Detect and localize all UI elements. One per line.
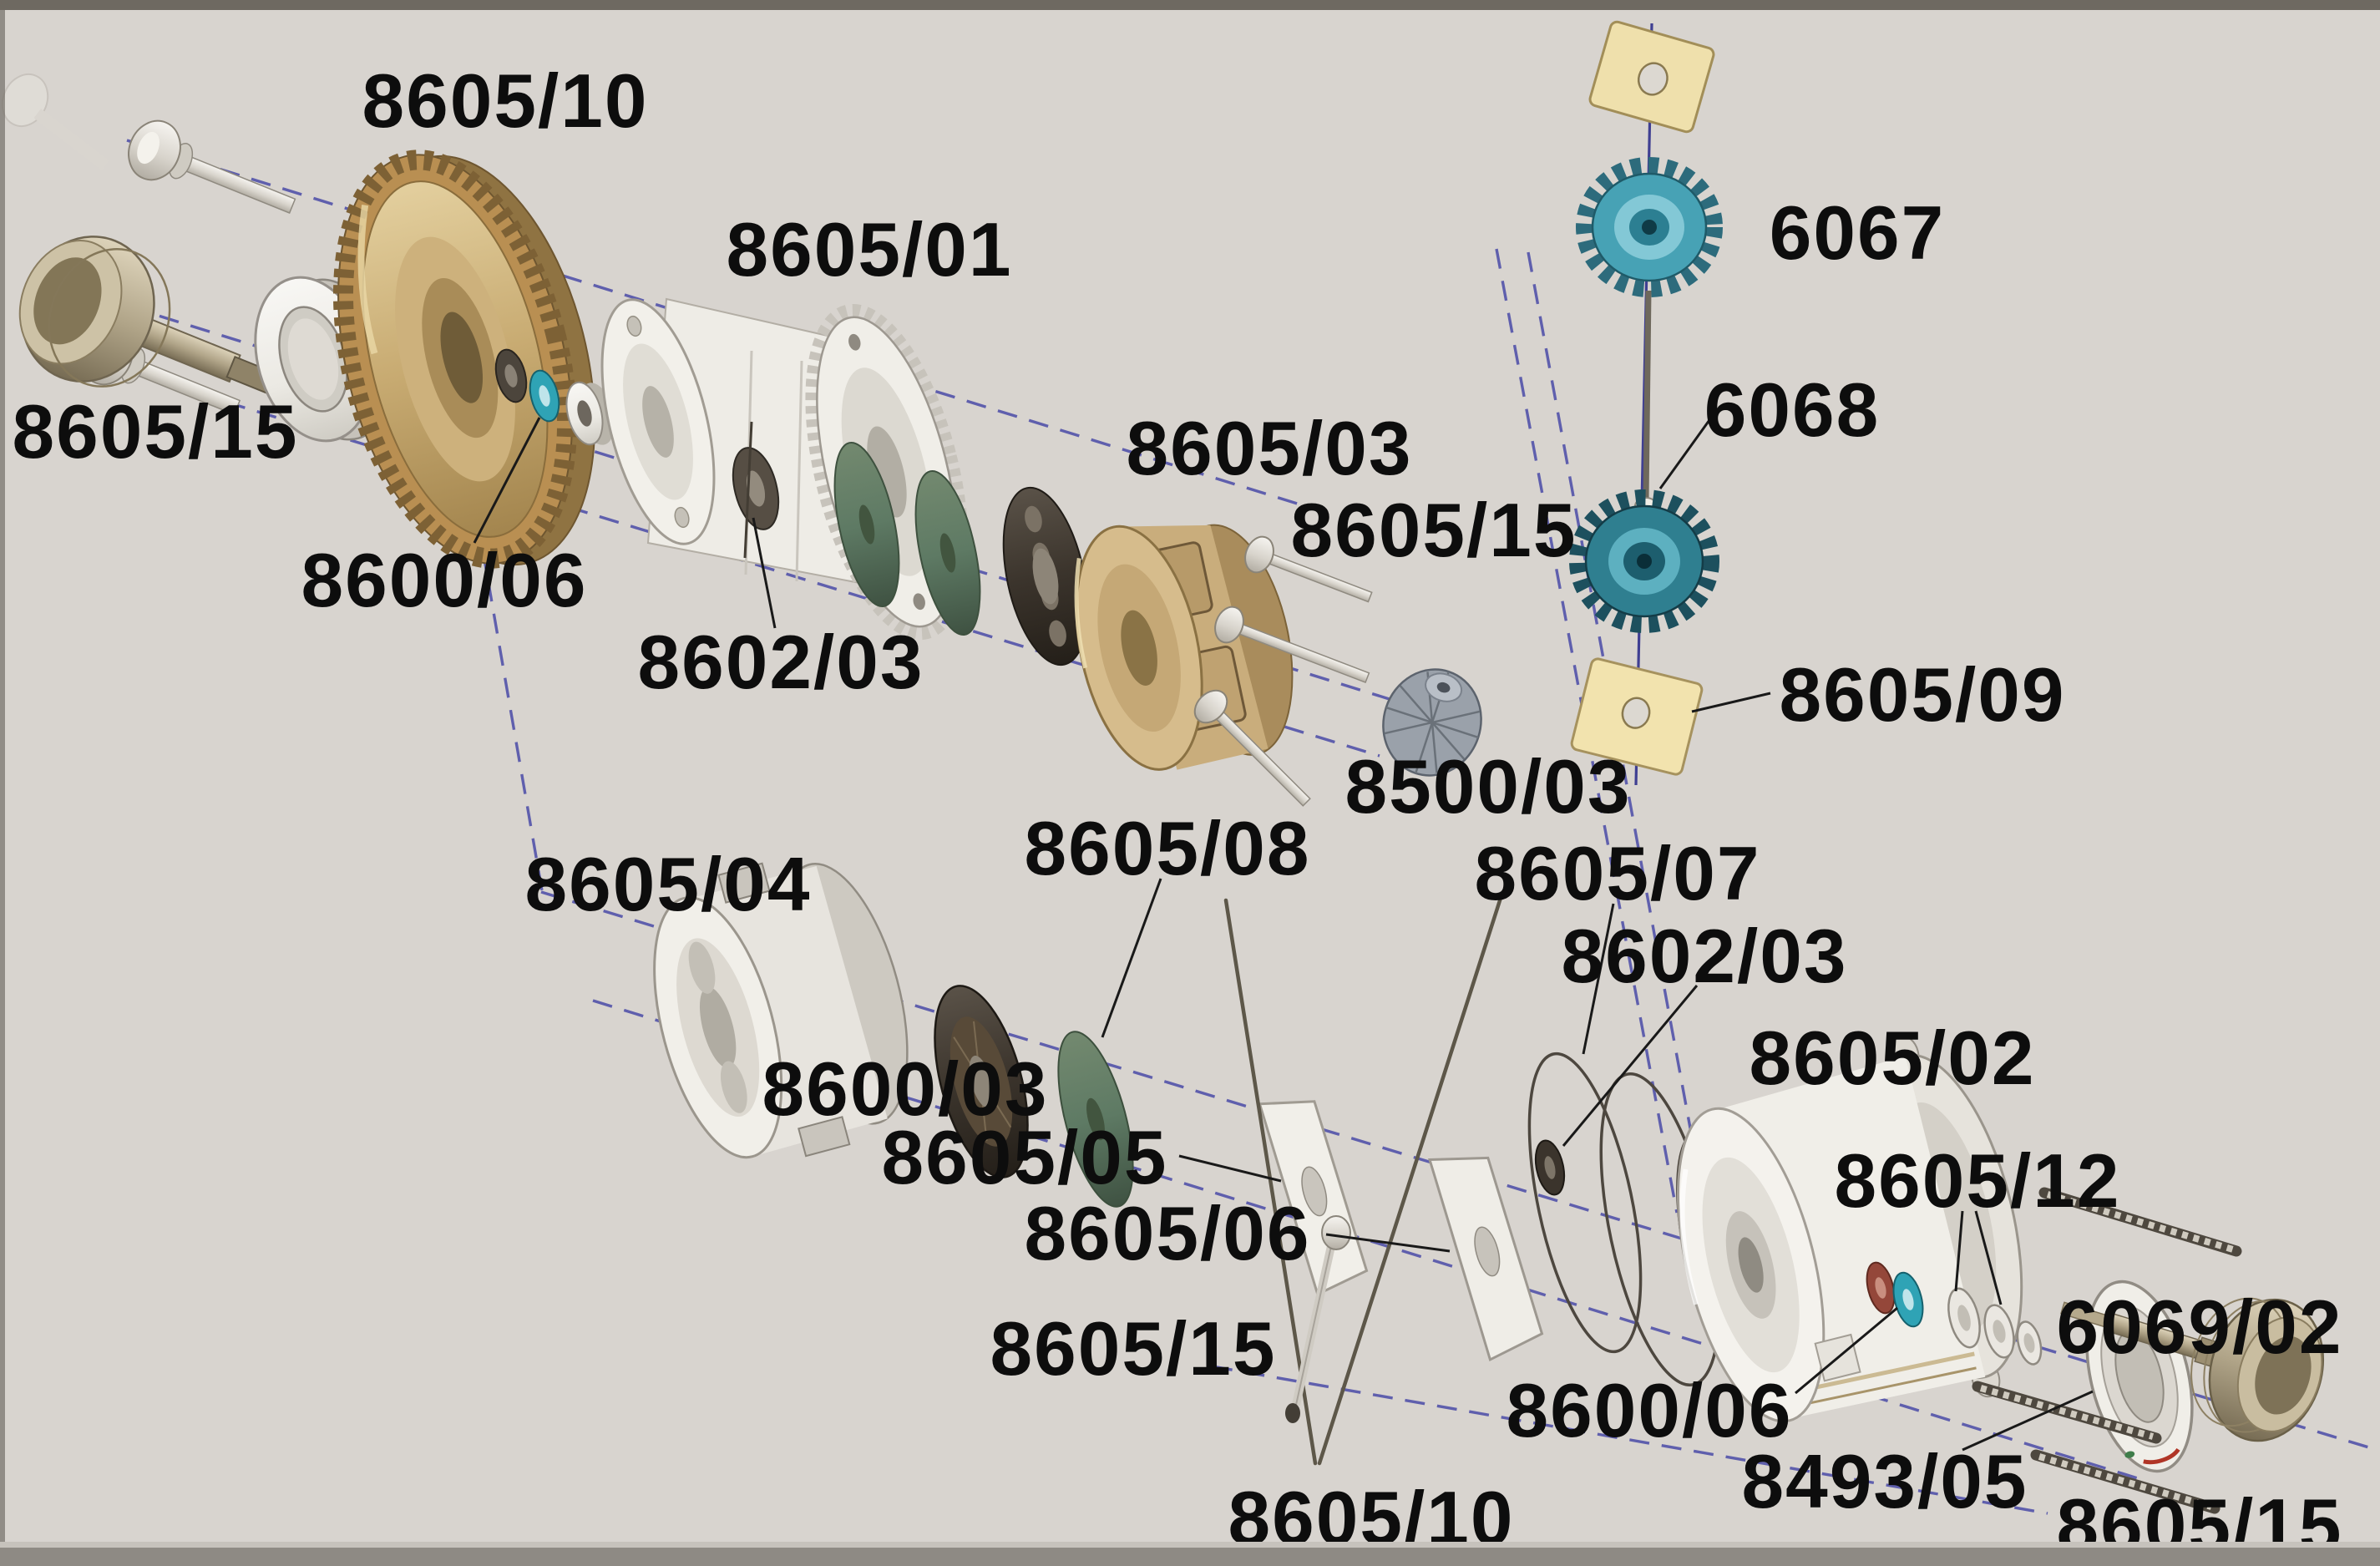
part-label-housing-ring: 8605/03	[1127, 407, 1413, 491]
part-label-plate-b: 8605/06	[1025, 1192, 1311, 1276]
bottom-bar	[0, 1548, 2380, 1566]
part-label-thrust-washer-top: 8602/03	[638, 621, 924, 705]
part-label-plate-a: 8605/05	[882, 1116, 1168, 1200]
part-label-housing-b: 8605/02	[1750, 1016, 2036, 1101]
part-label-outdrive: 6069/02	[2057, 1285, 2343, 1370]
part-label-thrust-pad: 8605/09	[1780, 653, 2066, 737]
top-bar	[0, 0, 2380, 10]
part-label-bevel-gear-top: 6067	[1770, 191, 1945, 276]
part-label-teal-shim-top: 8600/06	[301, 539, 588, 623]
exploded-diagram: 8605/108605/018605/158605/038605/1560676…	[0, 0, 2380, 1566]
part-label-screws-mid: 8605/15	[1291, 489, 1577, 573]
part-label-thrust-washer-b: 8602/03	[1562, 915, 1848, 999]
part-label-screws-left: 8605/15	[13, 390, 299, 474]
part-label-ball-bearing: 8493/05	[1742, 1440, 2028, 1524]
diagram-canvas: 8605/108605/018605/158605/038605/1560676…	[0, 0, 2380, 1566]
part-label-housing-a: 8605/01	[727, 208, 1013, 292]
part-label-wire-rings: 8605/07	[1475, 832, 1761, 916]
part-label-bevel-pinion: 8500/03	[1345, 745, 1632, 829]
part-label-bevel-shaft: 6068	[1704, 368, 1880, 453]
part-label-crown-gear: 8605/10	[362, 59, 649, 144]
part-label-gasket: 8605/08	[1025, 807, 1311, 891]
part-label-screw-c: 8605/15	[990, 1307, 1277, 1391]
bottom-bar-highlight	[0, 1542, 2380, 1548]
part-label-washer-set: 8605/12	[1835, 1139, 2121, 1224]
part-label-clutch-hub: 8605/04	[525, 843, 812, 927]
left-edge	[0, 10, 5, 1542]
